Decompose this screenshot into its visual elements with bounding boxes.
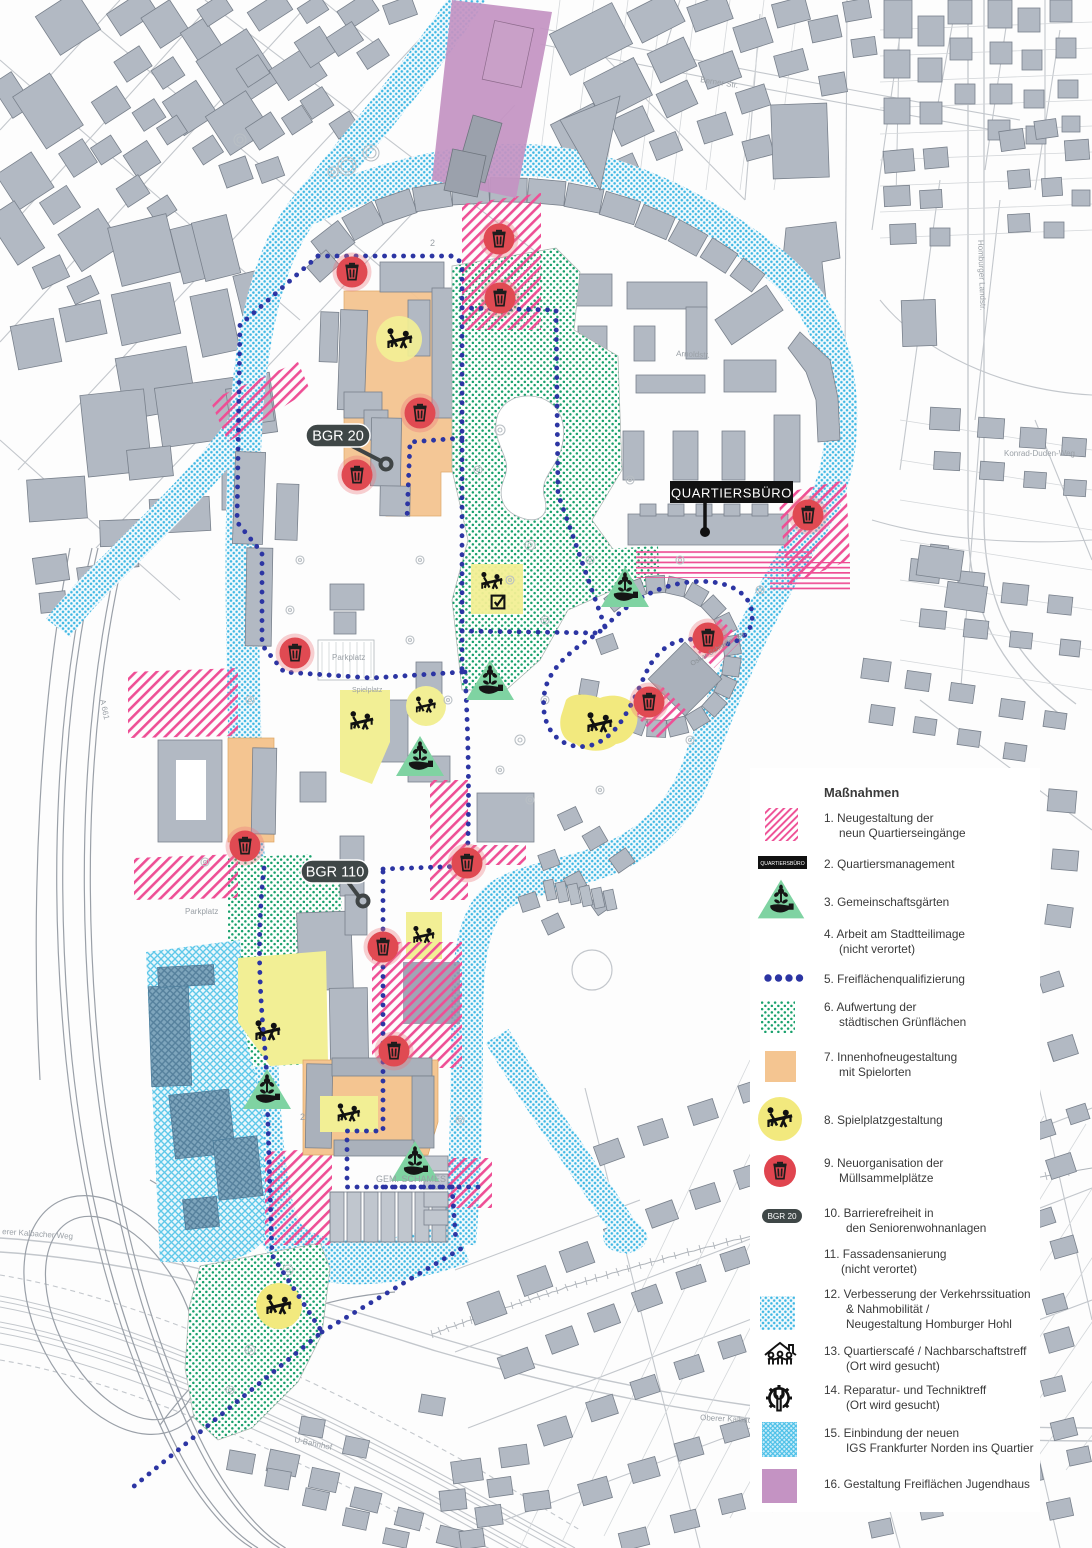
svg-text:BGR 20: BGR 20 (767, 1212, 797, 1221)
svg-text:2: 2 (430, 238, 435, 248)
svg-text:4. Arbeit am Stadtteilimage: 4. Arbeit am Stadtteilimage (824, 927, 965, 941)
svg-text:Müllsammelplätze: Müllsammelplätze (839, 1171, 934, 1185)
svg-text:QUARTIERSBÜRO: QUARTIERSBÜRO (671, 486, 792, 501)
svg-text:10. Barrierefreiheit in: 10. Barrierefreiheit in (824, 1206, 934, 1220)
svg-text:16. Gestaltung Freiflächen Jug: 16. Gestaltung Freiflächen Jugendhaus (824, 1477, 1030, 1491)
svg-text:(nicht verortet): (nicht verortet) (841, 1262, 917, 1276)
svg-text:2. Quartiersmanagement: 2. Quartiersmanagement (824, 857, 955, 871)
svg-text:12. Verbesserung der Verkehrss: 12. Verbesserung der Verkehrssituation (824, 1287, 1031, 1301)
svg-text:Neugestaltung Homburger Hohl: Neugestaltung Homburger Hohl (846, 1317, 1012, 1331)
svg-text:städtischen Grünflächen: städtischen Grünflächen (839, 1015, 966, 1029)
svg-text:3. Gemeinschaftsgärten: 3. Gemeinschaftsgärten (824, 895, 949, 909)
svg-text:BGR 110: BGR 110 (306, 865, 365, 881)
svg-text:(Ort wird gesucht): (Ort wird gesucht) (846, 1398, 940, 1412)
svg-text:5. Freiflächenqualifizierung: 5. Freiflächenqualifizierung (824, 972, 965, 986)
svg-text:1. Neugestaltung der: 1. Neugestaltung der (824, 811, 934, 825)
svg-text:Konrad-Duden-Weg: Konrad-Duden-Weg (1004, 449, 1075, 458)
svg-text:IGS Frankfurter Norden ins Qua: IGS Frankfurter Norden ins Quartier (846, 1441, 1034, 1455)
svg-text:11. Fassadensanierung: 11. Fassadensanierung (824, 1247, 946, 1261)
svg-text:9. Neuorganisation der: 9. Neuorganisation der (824, 1156, 943, 1170)
svg-text:(nicht verortet): (nicht verortet) (839, 942, 915, 956)
svg-text:Parkplatz: Parkplatz (185, 907, 218, 916)
svg-text:QUARTIERSBÜRO: QUARTIERSBÜRO (760, 860, 804, 867)
svg-text:Arnoldstr.: Arnoldstr. (676, 349, 710, 360)
svg-text:15. Einbindung der neuen: 15. Einbindung der neuen (824, 1426, 959, 1440)
svg-text:GEM. SCHAMES: GEM. SCHAMES (376, 1174, 446, 1184)
svg-text:Maßnahmen: Maßnahmen (824, 785, 899, 800)
svg-text:BGR 20: BGR 20 (312, 429, 364, 445)
svg-text:7. Innenhofneugestaltung: 7. Innenhofneugestaltung (824, 1050, 957, 1064)
svg-text:2: 2 (300, 1112, 305, 1122)
svg-text:14. Reparatur- und Techniktref: 14. Reparatur- und Techniktreff (824, 1383, 987, 1397)
svg-text:Spielplatz: Spielplatz (352, 687, 383, 694)
svg-text:& Nahmobilität /: & Nahmobilität / (846, 1302, 930, 1316)
svg-text:(Ort wird gesucht): (Ort wird gesucht) (846, 1359, 940, 1373)
svg-text:Parkplatz: Parkplatz (332, 653, 365, 662)
svg-text:mit Spielorten: mit Spielorten (839, 1065, 911, 1079)
svg-text:8. Spielplatzgestaltung: 8. Spielplatzgestaltung (824, 1113, 943, 1127)
svg-text:13. Quartierscafé / Nachbarsch: 13. Quartierscafé / Nachbarschaftstreff (824, 1344, 1027, 1358)
svg-text:6. Aufwertung der: 6. Aufwertung der (824, 1000, 917, 1014)
svg-text:den Seniorenwohnanlagen: den Seniorenwohnanlagen (846, 1221, 986, 1235)
svg-text:neun Quartierseingänge: neun Quartierseingänge (839, 826, 966, 840)
